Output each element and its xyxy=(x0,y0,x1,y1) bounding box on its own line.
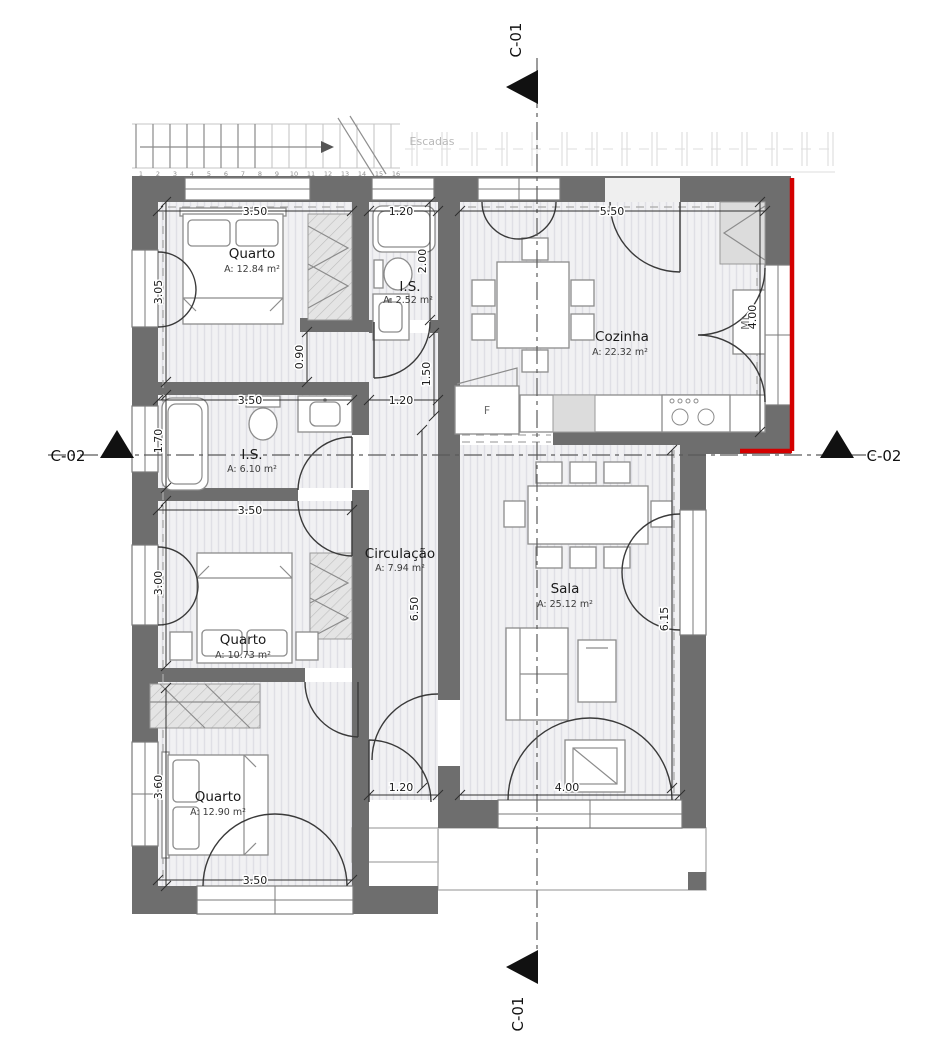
bathtub-is-mid xyxy=(162,398,208,490)
terrace xyxy=(352,828,706,890)
label-quarto2: QuartoA: 10.73 m² xyxy=(215,632,271,661)
svg-text:5.50: 5.50 xyxy=(600,205,625,218)
label-washing-machine: ML xyxy=(739,313,752,329)
stairs-label: Escadas xyxy=(410,135,455,148)
stairs: Escadas 1 2 3 4 5 6 7 8 9 10 11 12 13 14… xyxy=(132,116,835,178)
sink-is-mid xyxy=(298,396,352,432)
window-sala-right xyxy=(680,510,706,635)
terrace-pillar xyxy=(688,872,706,890)
french-door-sala-bottom xyxy=(498,800,682,828)
svg-text:3.60: 3.60 xyxy=(152,775,165,800)
section-label-c02-left: C-02 xyxy=(51,447,86,465)
svg-text:0.90: 0.90 xyxy=(293,345,306,370)
section-arrow-c01-top xyxy=(506,70,538,104)
svg-text:3.50: 3.50 xyxy=(238,504,263,517)
svg-text:Sala: Sala xyxy=(551,581,580,597)
svg-text:A: 12.90 m²: A: 12.90 m² xyxy=(190,807,246,818)
floor-plan-page: Escadas 1 2 3 4 5 6 7 8 9 10 11 12 13 14… xyxy=(0,0,931,1059)
label-fridge: F xyxy=(484,404,490,417)
svg-text:3.05: 3.05 xyxy=(152,280,165,305)
stairs-direction-arrow xyxy=(321,141,334,153)
section-label-c01-top: C-01 xyxy=(507,23,525,58)
svg-text:A: 10.73 m²: A: 10.73 m² xyxy=(215,650,271,661)
window-kitchen-right xyxy=(765,265,791,405)
tv-stand xyxy=(578,640,616,702)
svg-text:1.20: 1.20 xyxy=(389,781,414,794)
svg-text:1.20: 1.20 xyxy=(389,394,414,407)
section-arrow-c01-bottom xyxy=(506,950,538,984)
french-door-quarto3-bottom xyxy=(197,886,353,914)
stove xyxy=(662,395,730,432)
svg-text:Quarto: Quarto xyxy=(229,246,276,262)
svg-text:1.70: 1.70 xyxy=(152,429,165,454)
section-label-c01-bottom: C-01 xyxy=(509,997,527,1032)
floor-passage xyxy=(352,332,369,382)
svg-text:A: 6.10 m²: A: 6.10 m² xyxy=(227,464,277,475)
svg-text:A: 12.84 m²: A: 12.84 m² xyxy=(224,264,280,275)
window-is-small-top xyxy=(372,178,434,200)
svg-text:Quarto: Quarto xyxy=(220,632,267,648)
wardrobe-quarto2 xyxy=(310,553,352,639)
bed-quarto3 xyxy=(162,752,268,858)
svg-text:3.50: 3.50 xyxy=(243,205,268,218)
stairs-break-line xyxy=(338,116,386,176)
svg-text:6.50: 6.50 xyxy=(408,597,421,622)
window-quarto1-top xyxy=(185,178,310,200)
svg-text:3.50: 3.50 xyxy=(238,394,263,407)
label-quarto3: QuartoA: 12.90 m² xyxy=(190,789,246,818)
svg-text:3.00: 3.00 xyxy=(152,571,165,596)
floor-plan-drawing: Escadas 1 2 3 4 5 6 7 8 9 10 11 12 13 14… xyxy=(0,0,931,1059)
section-label-c02-right: C-02 xyxy=(867,447,902,465)
svg-text:1.20: 1.20 xyxy=(389,205,414,218)
window-kitchen-top xyxy=(478,178,560,200)
svg-text:I.S.: I.S. xyxy=(399,279,420,295)
section-arrow-c02-right xyxy=(820,430,854,458)
svg-text:Cozinha: Cozinha xyxy=(595,329,649,345)
svg-text:Circulação: Circulação xyxy=(365,546,435,562)
svg-text:A: 22.32 m²: A: 22.32 m² xyxy=(592,347,648,358)
wardrobe-quarto1 xyxy=(308,214,352,320)
svg-text:6.15: 6.15 xyxy=(658,607,671,632)
svg-text:1.50: 1.50 xyxy=(420,362,433,387)
svg-text:Quarto: Quarto xyxy=(195,789,242,805)
svg-text:2.00: 2.00 xyxy=(416,249,429,274)
svg-text:A: 25.12 m²: A: 25.12 m² xyxy=(537,599,593,610)
svg-text:3.50: 3.50 xyxy=(243,874,268,887)
label-cozinha: CozinhaA: 22.32 m² xyxy=(592,329,649,358)
svg-text:4.00: 4.00 xyxy=(555,781,580,794)
svg-text:I.S.: I.S. xyxy=(241,447,262,463)
label-quarto1: QuartoA: 12.84 m² xyxy=(224,246,280,275)
entry-door-opening xyxy=(605,178,680,202)
svg-text:A: 7.94 m²: A: 7.94 m² xyxy=(375,563,425,574)
section-arrow-c02-left xyxy=(100,430,134,458)
svg-text:A: 2.52 m²: A: 2.52 m² xyxy=(383,295,433,306)
label-circulacao: CirculaçãoA: 7.94 m² xyxy=(365,546,435,574)
kitchen-sala-opening xyxy=(462,435,551,442)
